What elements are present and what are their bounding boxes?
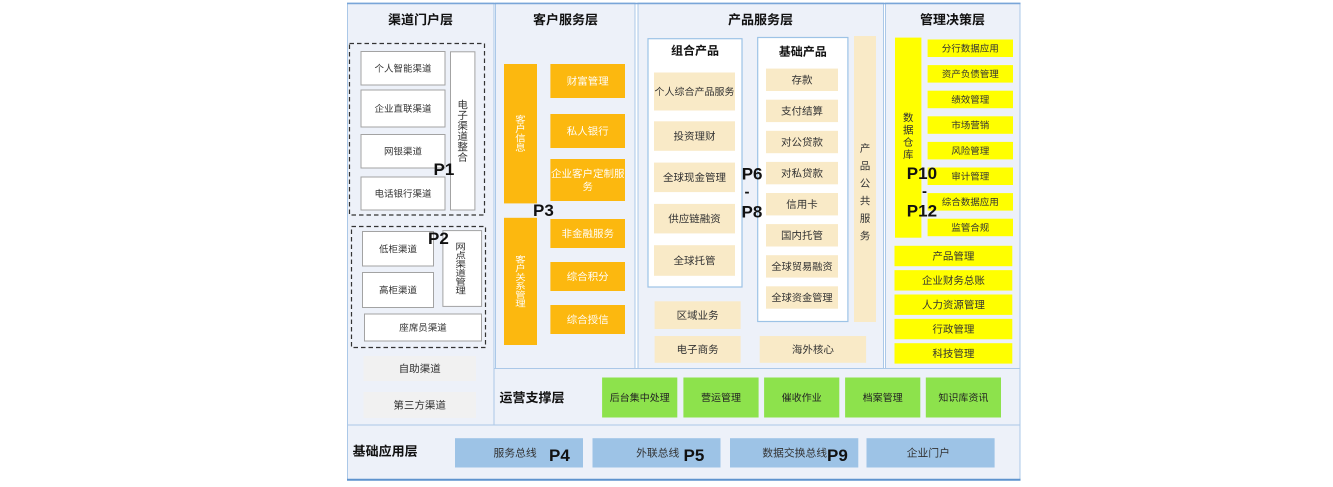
svg-text:P3: P3: [533, 201, 554, 220]
svg-text:P2: P2: [428, 229, 449, 248]
svg-text:P1: P1: [434, 160, 455, 179]
svg-text:P10: P10: [907, 164, 937, 183]
svg-text:-: -: [922, 183, 927, 200]
svg-text:P4: P4: [549, 446, 570, 465]
svg-text:P8: P8: [742, 203, 763, 222]
svg-text:P12: P12: [907, 201, 937, 220]
svg-text:P6: P6: [742, 165, 763, 184]
svg-text:P5: P5: [684, 446, 705, 465]
svg-text:-: -: [745, 184, 750, 201]
svg-text:P9: P9: [827, 446, 848, 465]
